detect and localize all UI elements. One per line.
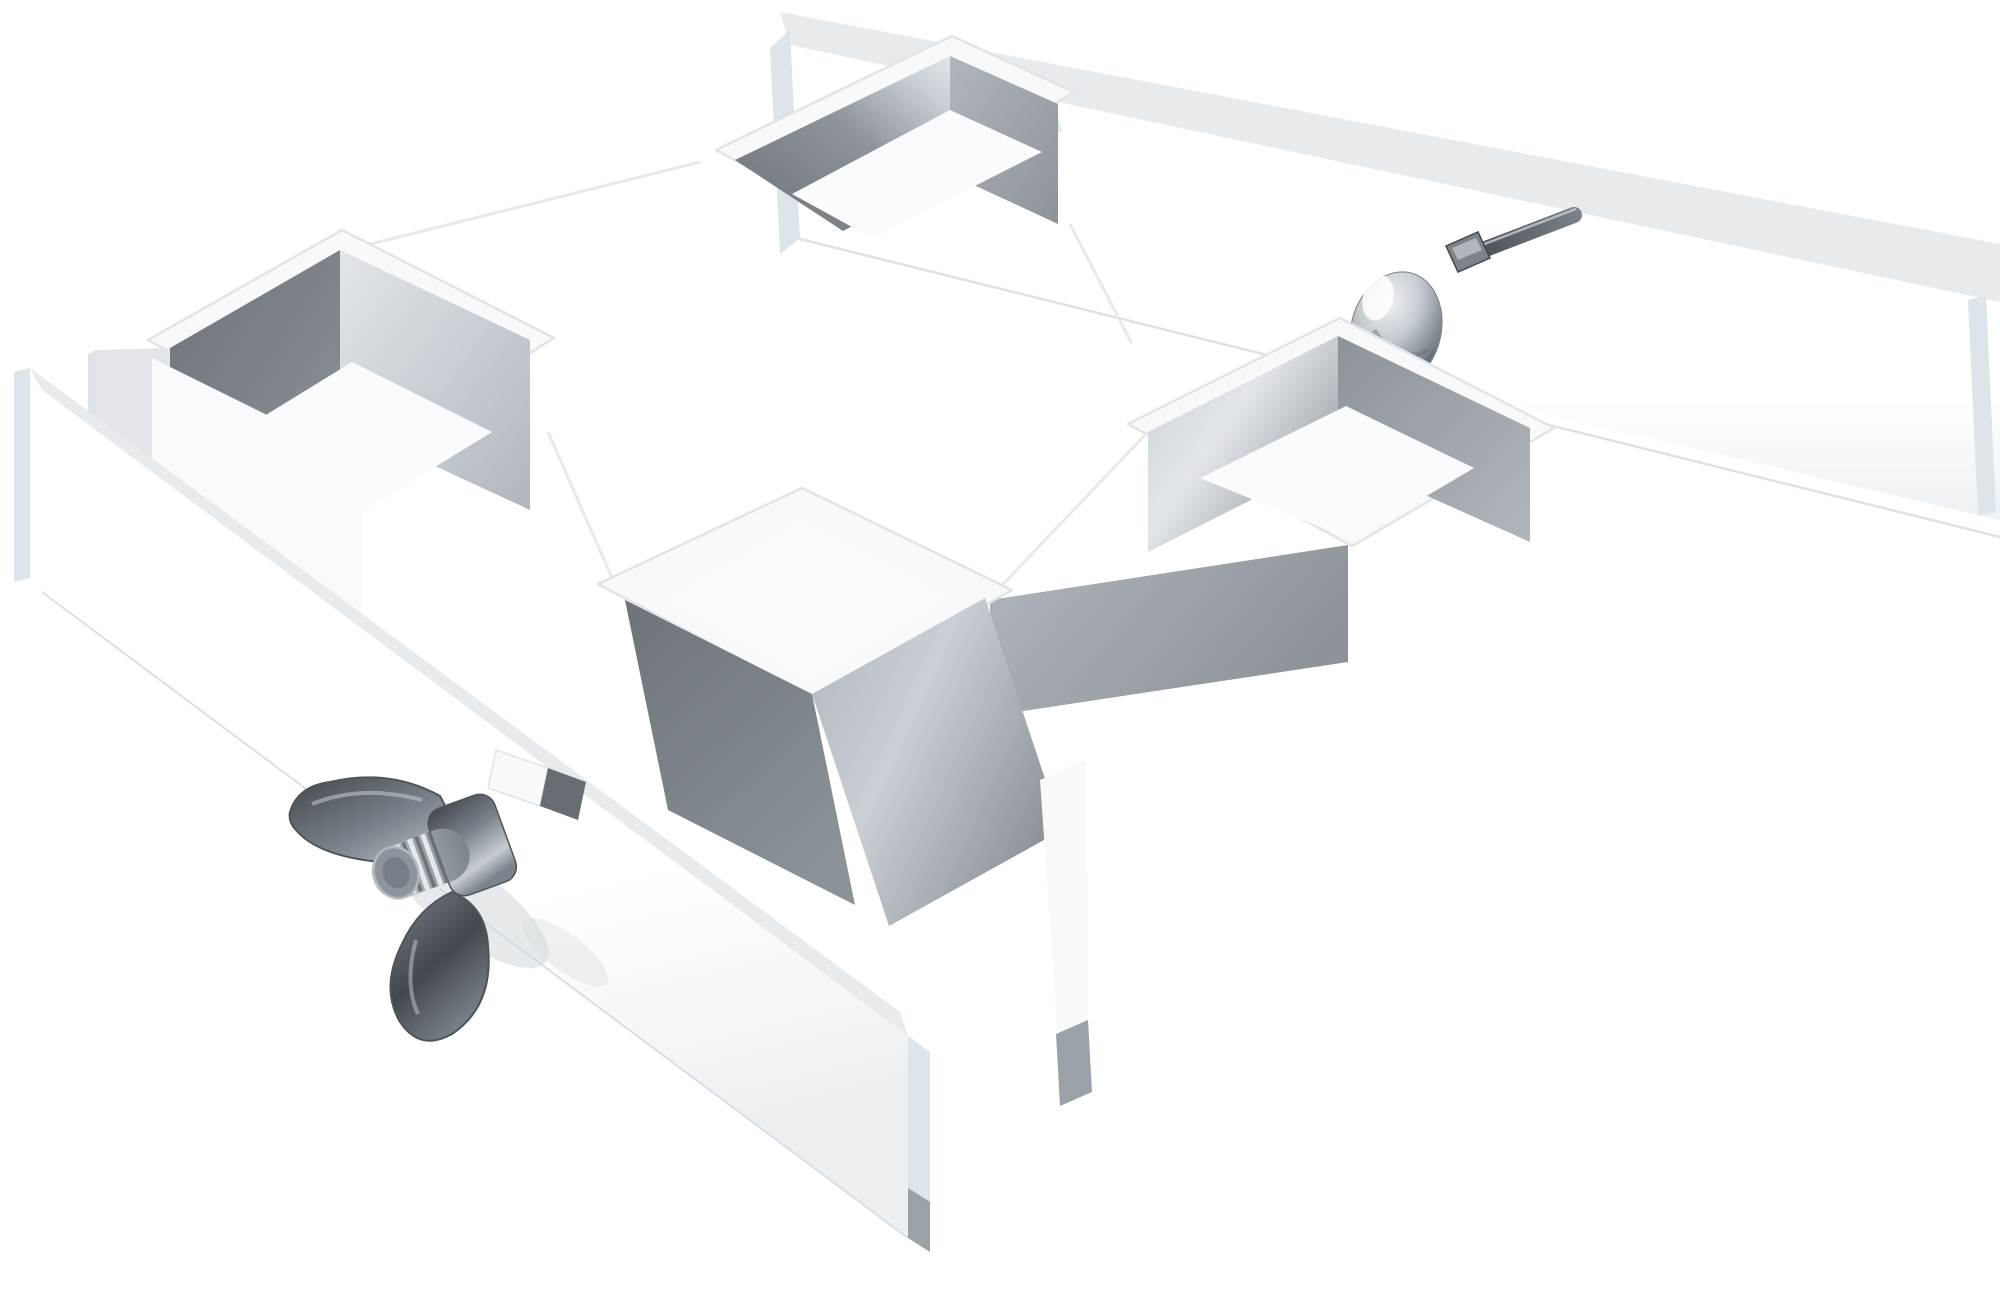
clamp-render-canvas: 3D render of a white steel cross clamp f… (0, 0, 2000, 1297)
pocket-bottom-wall-tip (1056, 1020, 1092, 1106)
clamp-3d-render: 3D render of a white steel cross clamp f… (0, 0, 2000, 1297)
front-bar-top-endcap (14, 368, 30, 582)
